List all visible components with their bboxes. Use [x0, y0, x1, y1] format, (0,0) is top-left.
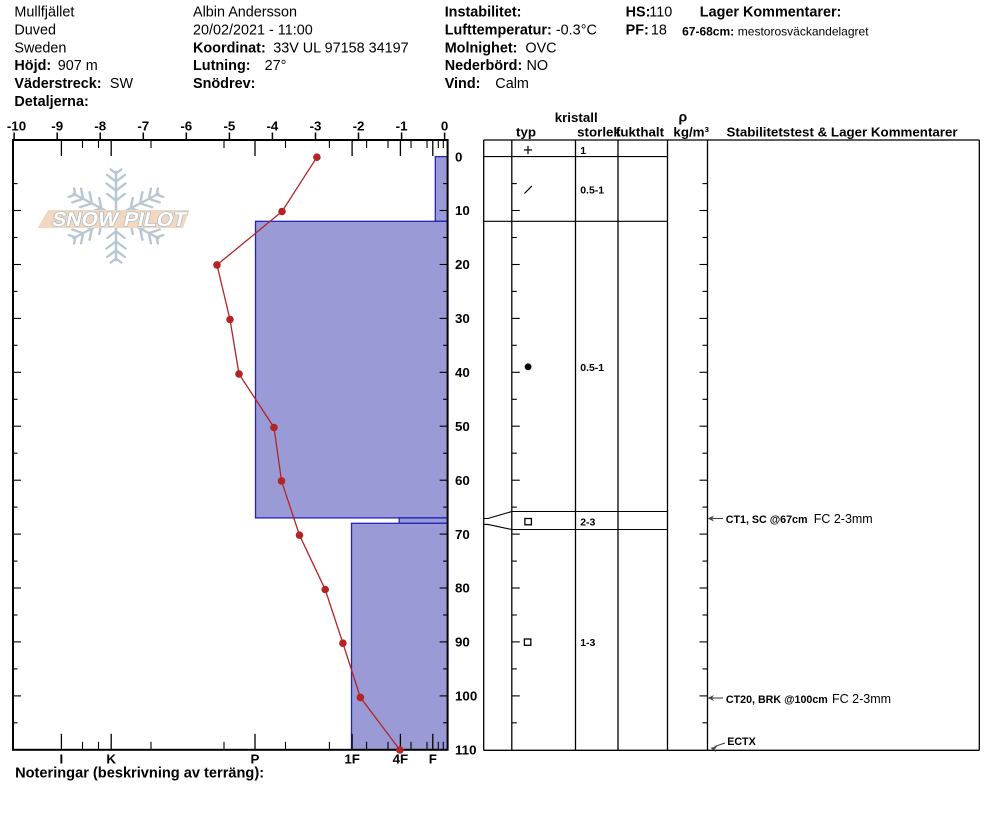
svg-text:fukthalt: fukthalt — [616, 124, 665, 139]
svg-text:PF:: PF: — [626, 23, 649, 39]
svg-text:110: 110 — [455, 743, 477, 758]
svg-text:P: P — [251, 751, 260, 766]
svg-text:67-68cm:: 67-68cm: — [682, 25, 734, 39]
svg-text:FC 2-3mm: FC 2-3mm — [814, 512, 873, 526]
svg-text:1F: 1F — [344, 751, 360, 766]
svg-text:Mullfjället: Mullfjället — [14, 5, 74, 21]
svg-text:Stabilitetstest & Lager Kommen: Stabilitetstest & Lager Kommentarer — [727, 124, 958, 139]
svg-text:CT1, SC @67cm: CT1, SC @67cm — [726, 514, 808, 526]
svg-text:FC 2-3mm: FC 2-3mm — [832, 692, 891, 706]
svg-text:Höjd:: Höjd: — [14, 58, 51, 74]
svg-text:0.5-1: 0.5-1 — [580, 185, 604, 197]
svg-text:110: 110 — [649, 5, 672, 21]
svg-text:-4: -4 — [266, 118, 278, 133]
svg-text:0: 0 — [441, 118, 448, 133]
svg-text:typ: typ — [516, 124, 536, 139]
svg-text:-5: -5 — [223, 118, 235, 133]
svg-text:90: 90 — [455, 635, 470, 650]
svg-text:K: K — [106, 751, 116, 766]
svg-text:30: 30 — [455, 311, 470, 326]
svg-text:60: 60 — [455, 473, 470, 488]
svg-text:Albin Andersson: Albin Andersson — [193, 5, 297, 21]
svg-text:-6: -6 — [180, 118, 192, 133]
svg-text:-0.3°C: -0.3°C — [556, 23, 597, 39]
svg-text:Nederbörd:: Nederbörd: — [445, 58, 523, 74]
svg-text:Detaljerna:: Detaljerna: — [14, 94, 88, 110]
svg-text:1-3: 1-3 — [580, 637, 595, 649]
svg-text:18: 18 — [651, 23, 667, 39]
svg-text:10: 10 — [455, 203, 470, 218]
svg-text:Snödrev:: Snödrev: — [193, 76, 255, 92]
svg-text:SW: SW — [110, 76, 134, 92]
svg-text:mestorosväckandelagret: mestorosväckandelagret — [738, 25, 869, 39]
svg-text:907 m: 907 m — [58, 58, 98, 74]
svg-text:storlek: storlek — [577, 124, 621, 139]
svg-text:40: 40 — [455, 365, 470, 380]
svg-text:Vind:: Vind: — [445, 76, 481, 92]
svg-text:0: 0 — [455, 149, 462, 164]
svg-text:Molnighet:: Molnighet: — [445, 40, 518, 56]
svg-text:Duved: Duved — [14, 23, 56, 39]
svg-text:Koordinat:: Koordinat: — [193, 40, 266, 56]
svg-text:20/02/2021 - 11:00: 20/02/2021 - 11:00 — [193, 23, 313, 39]
svg-text:Instabilitet:: Instabilitet: — [445, 5, 522, 21]
svg-text:Noteringar (beskrivning av ter: Noteringar (beskrivning av terräng): — [15, 766, 264, 782]
svg-text:-7: -7 — [137, 118, 149, 133]
svg-text:-10: -10 — [7, 118, 26, 133]
svg-text:HS:: HS: — [626, 5, 651, 21]
svg-text:1: 1 — [580, 145, 586, 157]
svg-text:kg/m³: kg/m³ — [673, 124, 709, 139]
svg-text:F: F — [429, 751, 437, 766]
svg-text:ECTX: ECTX — [727, 736, 756, 748]
svg-text:-9: -9 — [51, 118, 63, 133]
svg-text:Lager Kommentarer:: Lager Kommentarer: — [700, 5, 842, 21]
svg-text:-1: -1 — [396, 118, 408, 133]
svg-text:2-3: 2-3 — [580, 517, 595, 529]
svg-text:Sweden: Sweden — [14, 40, 66, 56]
svg-text:CT20, BRK @100cm: CT20, BRK @100cm — [726, 694, 828, 706]
svg-text:80: 80 — [455, 581, 470, 596]
svg-text:0.5-1: 0.5-1 — [580, 362, 604, 374]
svg-text:I: I — [60, 751, 64, 766]
svg-text:SNOW PILOT: SNOW PILOT — [50, 209, 189, 231]
svg-text:ρ: ρ — [678, 109, 687, 125]
svg-text:20: 20 — [455, 257, 470, 272]
svg-text:100: 100 — [455, 689, 477, 704]
svg-text:-3: -3 — [310, 118, 322, 133]
svg-text:27°: 27° — [265, 58, 287, 74]
svg-text:Väderstreck:: Väderstreck: — [14, 76, 101, 92]
svg-text:Calm: Calm — [495, 76, 529, 92]
svg-text:kristall: kristall — [555, 110, 598, 125]
svg-text:OVC: OVC — [525, 40, 556, 56]
svg-text:Lufttemperatur:: Lufttemperatur: — [445, 23, 552, 39]
svg-text:Lutning:: Lutning: — [193, 58, 251, 74]
svg-text:33V UL 97158 34197: 33V UL 97158 34197 — [273, 40, 409, 56]
svg-text:70: 70 — [455, 527, 470, 542]
svg-text:-8: -8 — [94, 118, 106, 133]
svg-text:-2: -2 — [353, 118, 365, 133]
svg-text:50: 50 — [455, 419, 470, 434]
svg-text:NO: NO — [527, 58, 549, 74]
